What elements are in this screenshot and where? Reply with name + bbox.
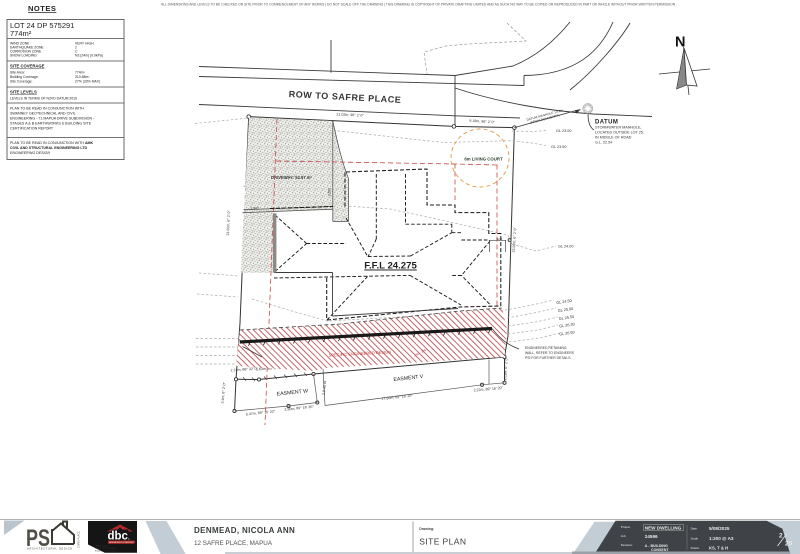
- svg-text:DESIGN BUILD CONSTRUCT: DESIGN BUILD CONSTRUCT: [109, 542, 136, 544]
- svg-text:27% (33% MAX): 27% (33% MAX): [75, 80, 100, 84]
- svg-text:PLAN TO BE READ IN CONJUNCTION: PLAN TO BE READ IN CONJUNCTION WITH AMK: [10, 141, 94, 145]
- svg-text:Email: team@dbcltd.co.nz: Email: team@dbcltd.co.nz: [95, 550, 118, 553]
- svg-text:774m²: 774m²: [75, 71, 85, 75]
- svg-text:3.600: 3.600: [328, 188, 332, 196]
- svg-text:210.68m²: 210.68m²: [75, 75, 90, 79]
- svg-text:IN MIDDLE OF ROAD: IN MIDDLE OF ROAD: [595, 136, 632, 140]
- svg-text:STAGES A & B EARTHWORKS & BUIL: STAGES A & B EARTHWORKS & BUILDING SITE: [10, 122, 92, 126]
- svg-text:GL 23.00: GL 23.00: [556, 129, 571, 133]
- svg-text:DRIVEWAY: 52.97 m²: DRIVEWAY: 52.97 m²: [271, 175, 313, 180]
- svg-text:2: 2: [779, 533, 783, 540]
- svg-text:CHRIS PLACE: CHRIS PLACE: [78, 531, 81, 548]
- svg-text:24596: 24596: [645, 534, 658, 539]
- svg-text:Site Area:: Site Area:: [10, 71, 25, 75]
- svg-text:ARCHITECTURAL DESIGN: ARCHITECTURAL DESIGN: [27, 547, 73, 551]
- svg-text:Revision: Revision: [621, 543, 633, 547]
- svg-text:G.L. 22.54: G.L. 22.54: [595, 141, 612, 145]
- svg-text:Drawing:: Drawing:: [419, 527, 434, 531]
- svg-text:LEVELS IN TERMS OF NZVD DATUM: LEVELS IN TERMS OF NZVD DATUM 2016: [10, 97, 77, 101]
- svg-text:Drawn: Drawn: [691, 546, 700, 550]
- svg-text:20: 20: [785, 541, 793, 548]
- svg-text:12 SAFRE PLACE, MAPUA: 12 SAFRE PLACE, MAPUA: [194, 540, 273, 547]
- svg-text:DATUM: DATUM: [595, 120, 618, 126]
- svg-text:SWANNEY GEOTECHNICAL AND CIVIL: SWANNEY GEOTECHNICAL AND CIVIL: [10, 112, 76, 116]
- svg-text:6m LIVING COURT: 6m LIVING COURT: [464, 157, 503, 162]
- svg-text:SITE COVERAGE: SITE COVERAGE: [10, 64, 45, 69]
- svg-text:SNOW LOADING: SNOW LOADING: [10, 54, 37, 58]
- svg-text:SITE LEVELS: SITE LEVELS: [10, 90, 37, 95]
- svg-text:CONSENT: CONSENT: [651, 548, 669, 552]
- svg-text:Date: Date: [691, 527, 698, 531]
- svg-text:LOCATED OUTSIDE LOT 25,: LOCATED OUTSIDE LOT 25,: [595, 131, 644, 135]
- svg-text:SITE PLAN: SITE PLAN: [419, 537, 466, 547]
- svg-text:WALL, REFER TO ENGINEERS: WALL, REFER TO ENGINEERS: [525, 351, 575, 355]
- svg-text:774m²: 774m²: [10, 29, 32, 38]
- svg-text:ENGINEERED RETAINING: ENGINEERED RETAINING: [525, 346, 567, 350]
- svg-text:GL 24.00: GL 24.00: [558, 245, 573, 249]
- svg-text:CERTIFICATION REPORT: CERTIFICATION REPORT: [10, 127, 54, 131]
- svg-text:Building Coverage:: Building Coverage:: [10, 75, 39, 79]
- svg-text:N3 (24m) (0.0kPa): N3 (24m) (0.0kPa): [75, 54, 103, 58]
- svg-text:F.F.L 24.275: F.F.L 24.275: [364, 261, 417, 272]
- svg-text:NEW DWELLING: NEW DWELLING: [645, 525, 682, 530]
- svg-text:Site Coverage:: Site Coverage:: [10, 80, 32, 84]
- svg-text:3.402: 3.402: [251, 206, 260, 210]
- svg-text:1:200 @ A3: 1:200 @ A3: [709, 536, 734, 541]
- svg-text:NOTES: NOTES: [28, 4, 56, 13]
- svg-text:ENGINEERING - 71 MAPUA DRIVE S: ENGINEERING - 71 MAPUA DRIVE SUBDIVISION…: [10, 117, 95, 121]
- svg-text:Scale: Scale: [691, 537, 699, 541]
- svg-text:92.2: 92.2: [497, 237, 503, 241]
- svg-text:PSI FOR FURTHER DETAILS: PSI FOR FURTHER DETAILS: [525, 356, 571, 360]
- svg-text:STORMWATER MANHOLE,: STORMWATER MANHOLE,: [595, 126, 641, 130]
- svg-text:ENGINEERING DESIGN: ENGINEERING DESIGN: [10, 151, 50, 155]
- svg-text:KS, T & H: KS, T & H: [709, 545, 728, 550]
- svg-text:Project: Project: [621, 525, 631, 529]
- svg-text:Job: Job: [621, 534, 626, 538]
- svg-text:GL 23.50: GL 23.50: [551, 145, 566, 149]
- svg-text:DENMEAD, NICOLA ANN: DENMEAD, NICOLA ANN: [194, 526, 295, 535]
- svg-text:VERY HIGH: VERY HIGH: [75, 42, 94, 46]
- svg-text:5/08/2025: 5/08/2025: [709, 526, 730, 531]
- svg-text:CIVIL AND STRUCTURAL ENGINEERI: CIVIL AND STRUCTURAL ENGINEERING LTD: [10, 146, 88, 150]
- svg-text:PLAN TO BE READ IN CONJUNCTION: PLAN TO BE READ IN CONJUNCTION WITH: [10, 107, 84, 111]
- svg-text:ALL DIMENSIONS AND LEVELS TO B: ALL DIMENSIONS AND LEVELS TO BE CHECKED …: [161, 3, 676, 7]
